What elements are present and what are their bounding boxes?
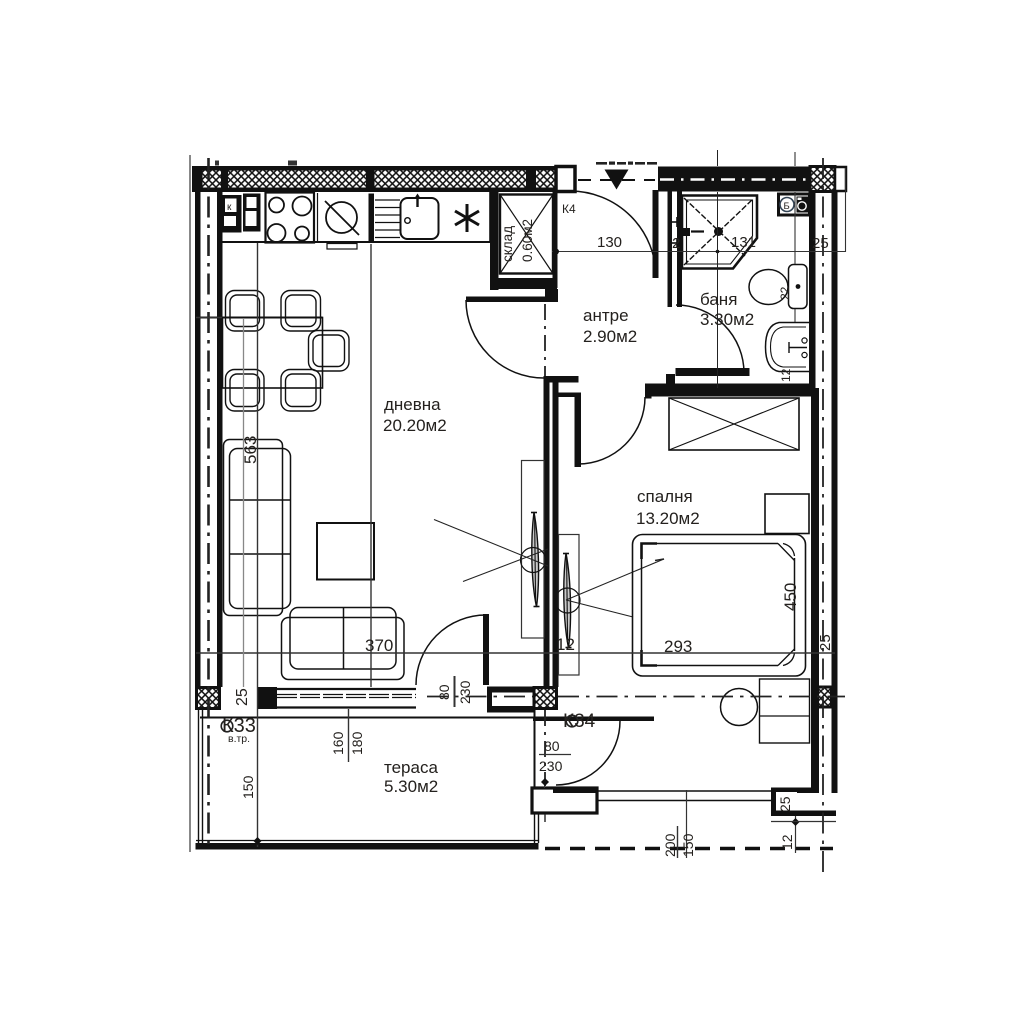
svg-text:563: 563: [241, 436, 260, 464]
svg-text:150: 150: [240, 775, 256, 799]
svg-text:в.тр.: в.тр.: [228, 733, 250, 745]
svg-text:293: 293: [664, 637, 692, 656]
svg-text:0.60м2: 0.60м2: [520, 219, 535, 262]
svg-text:тераса: тераса: [384, 758, 438, 777]
svg-text:80: 80: [436, 684, 452, 700]
svg-text:200: 200: [662, 833, 678, 857]
svg-text:баня: баня: [700, 290, 737, 309]
svg-text:К4: К4: [562, 202, 576, 216]
svg-text:12: 12: [556, 635, 575, 654]
svg-text:12: 12: [779, 834, 795, 850]
svg-text:130: 130: [597, 234, 622, 251]
svg-text:антре: антре: [583, 306, 629, 325]
svg-text:180: 180: [349, 731, 365, 755]
svg-text:3.30м2: 3.30м2: [700, 310, 754, 329]
svg-text:150: 150: [680, 833, 696, 857]
svg-text:370: 370: [365, 636, 393, 655]
svg-text:230: 230: [539, 758, 563, 774]
svg-text:80: 80: [544, 738, 560, 754]
svg-text:160: 160: [330, 731, 346, 755]
svg-text:25: 25: [777, 796, 793, 812]
svg-text:12: 12: [779, 368, 793, 382]
svg-text:25: 25: [812, 235, 829, 252]
svg-text:дневна: дневна: [384, 395, 441, 414]
svg-text:450: 450: [781, 583, 800, 611]
svg-text:2.90м2: 2.90м2: [583, 327, 637, 346]
svg-text:5.30м2: 5.30м2: [384, 777, 438, 796]
svg-text:13.20м2: 13.20м2: [636, 509, 700, 528]
svg-text:К34: К34: [563, 711, 596, 732]
svg-text:склад: склад: [500, 226, 515, 262]
svg-text:131: 131: [731, 234, 756, 251]
svg-text:25: 25: [817, 634, 834, 651]
svg-text:22: 22: [778, 286, 792, 300]
svg-text:230: 230: [457, 680, 473, 704]
svg-text:20.20м2: 20.20м2: [383, 416, 447, 435]
svg-text:к: к: [227, 202, 232, 213]
svg-text:2: 2: [672, 235, 680, 252]
svg-text:Б: Б: [784, 201, 790, 212]
svg-text:25: 25: [234, 688, 251, 706]
svg-text:спалня: спалня: [637, 487, 693, 506]
